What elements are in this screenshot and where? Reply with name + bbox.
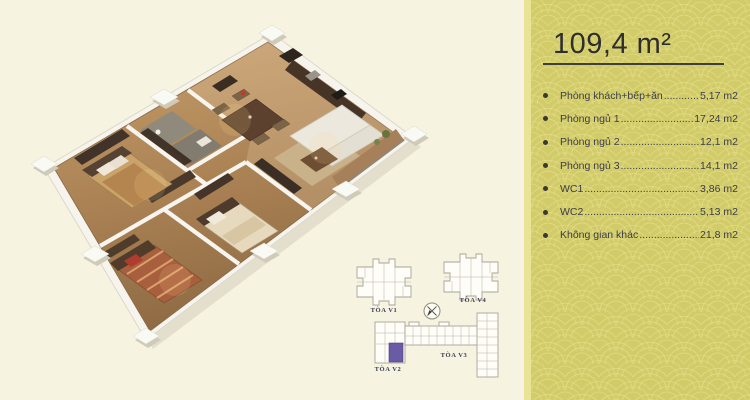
bullet-icon	[543, 233, 548, 238]
list-item: Không gian khác ........................…	[543, 224, 738, 247]
list-item: WC2 ....................................…	[543, 200, 738, 223]
dot-leader: ........................................…	[664, 90, 699, 102]
list-item: Phòng ngủ 3 ............................…	[543, 154, 738, 177]
label-toa-v1: TÒA V1	[371, 306, 398, 314]
room-area: 5,13 m2	[700, 206, 738, 218]
bullet-icon	[543, 116, 548, 121]
room-area: 17,24 m2	[694, 113, 738, 125]
room-area: 3,86 m2	[700, 183, 738, 195]
label-toa-v3: TÒA V3	[441, 351, 468, 359]
building-v1	[357, 259, 411, 305]
info-panel: 109,4 m² Phòng khách+bếp+ăn ............…	[524, 0, 750, 400]
room-label: Phòng khách+bếp+ăn	[560, 90, 663, 102]
room-area: 21,8 m2	[700, 229, 738, 241]
room-area: 12,1 m2	[700, 136, 738, 148]
compass-icon	[424, 303, 440, 319]
list-item: Phòng ngủ 2 ............................…	[543, 131, 738, 154]
building-v2	[375, 322, 405, 363]
building-v3	[405, 313, 498, 377]
room-label: WC2	[560, 206, 583, 218]
plant	[382, 130, 390, 138]
room-label: Không gian khác	[560, 229, 638, 241]
label-toa-v4: TÒA V4	[460, 296, 487, 304]
dot-leader: ........................................…	[639, 229, 699, 241]
brochure: TÒA V1 TÒA V4 TÒA V2 TÒA V3 109,4 m² Phò…	[0, 0, 750, 400]
label-toa-v2: TÒA V2	[375, 365, 402, 373]
dot-leader: ........................................…	[584, 183, 699, 195]
room-area: 14,1 m2	[700, 160, 738, 172]
list-item: Phòng ngủ 1 ............................…	[543, 107, 738, 130]
bullet-icon	[543, 93, 548, 98]
bath-fixture	[156, 130, 161, 135]
dot-leader: ........................................…	[621, 113, 694, 125]
site-map: TÒA V1 TÒA V4 TÒA V2 TÒA V3	[343, 246, 508, 391]
title-underline	[543, 63, 724, 65]
room-area-list: Phòng khách+bếp+ăn .....................…	[543, 84, 738, 247]
room-label: Phòng ngủ 1	[560, 113, 620, 125]
total-area-title: 109,4 m²	[553, 30, 671, 59]
building-v4	[444, 254, 498, 300]
plant-2	[374, 139, 380, 145]
red-vase	[241, 91, 246, 96]
dot-leader: ........................................…	[621, 160, 699, 172]
room-label: WC1	[560, 183, 583, 195]
bullet-icon	[543, 210, 548, 215]
highlighted-unit	[389, 343, 403, 362]
room-area: 5,17 m2	[700, 90, 738, 102]
dot-leader: ........................................…	[584, 206, 699, 218]
room-label: Phòng ngủ 2	[560, 136, 620, 148]
list-item: Phòng khách+bếp+ăn .....................…	[543, 84, 738, 107]
list-item: WC1 ....................................…	[543, 177, 738, 200]
room-label: Phòng ngủ 3	[560, 160, 620, 172]
bullet-icon	[543, 140, 548, 145]
dot-leader: ........................................…	[621, 136, 699, 148]
bullet-icon	[543, 186, 548, 191]
bullet-icon	[543, 163, 548, 168]
